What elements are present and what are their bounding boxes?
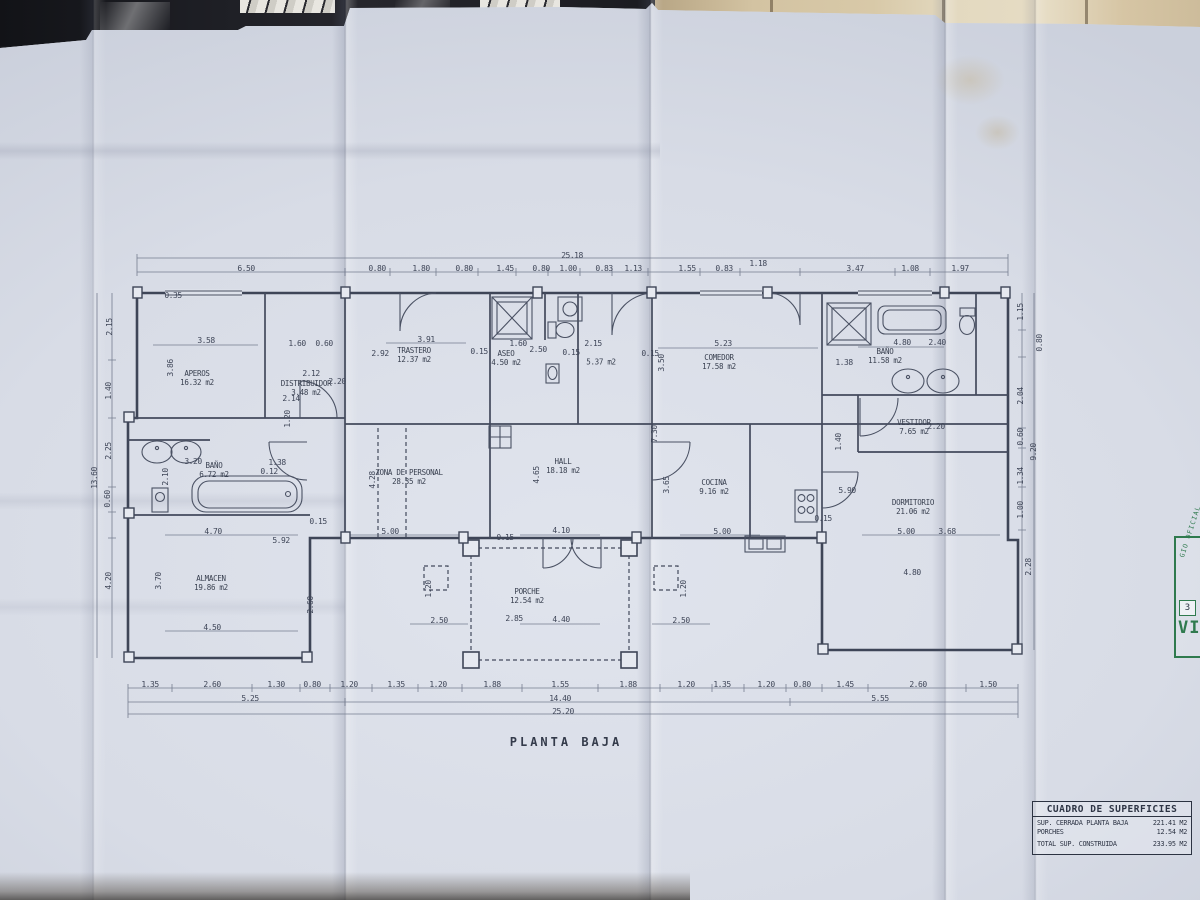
surface-table: CUADRO DE SUPERFICIES SUP. CERRADA PLANT… <box>1032 801 1192 855</box>
paper-stain <box>935 55 1005 105</box>
photo-of-floor-plan: 25.186.500.801.800.801.450.801.000.831.1… <box>0 0 1200 900</box>
surface-table-row: TOTAL SUP. CONSTRUIDA233.95 M2 <box>1033 838 1191 848</box>
surface-table-row: SUP. CERRADA PLANTA BAJA221.41 M2 <box>1033 817 1191 827</box>
approval-stamp: GIO OFICIAL 3 VI <box>1174 536 1200 658</box>
surface-table-title: CUADRO DE SUPERFICIES <box>1033 802 1191 817</box>
stamp-number-box: 3 <box>1179 600 1196 616</box>
patterned-tile <box>480 0 560 8</box>
paper-stain <box>975 115 1020 150</box>
blueprint-paper <box>0 0 1200 900</box>
plan-title: PLANTA BAJA <box>510 735 622 749</box>
surface-table-row: PORCHES12.54 M2 <box>1033 827 1191 837</box>
paper-bottom-shadow <box>0 872 690 900</box>
surface-table-rows: SUP. CERRADA PLANTA BAJA221.41 M2PORCHES… <box>1033 817 1191 848</box>
stamp-visado-text: VI <box>1178 618 1200 638</box>
patterned-tile <box>240 0 335 13</box>
marble-vein <box>100 2 170 32</box>
